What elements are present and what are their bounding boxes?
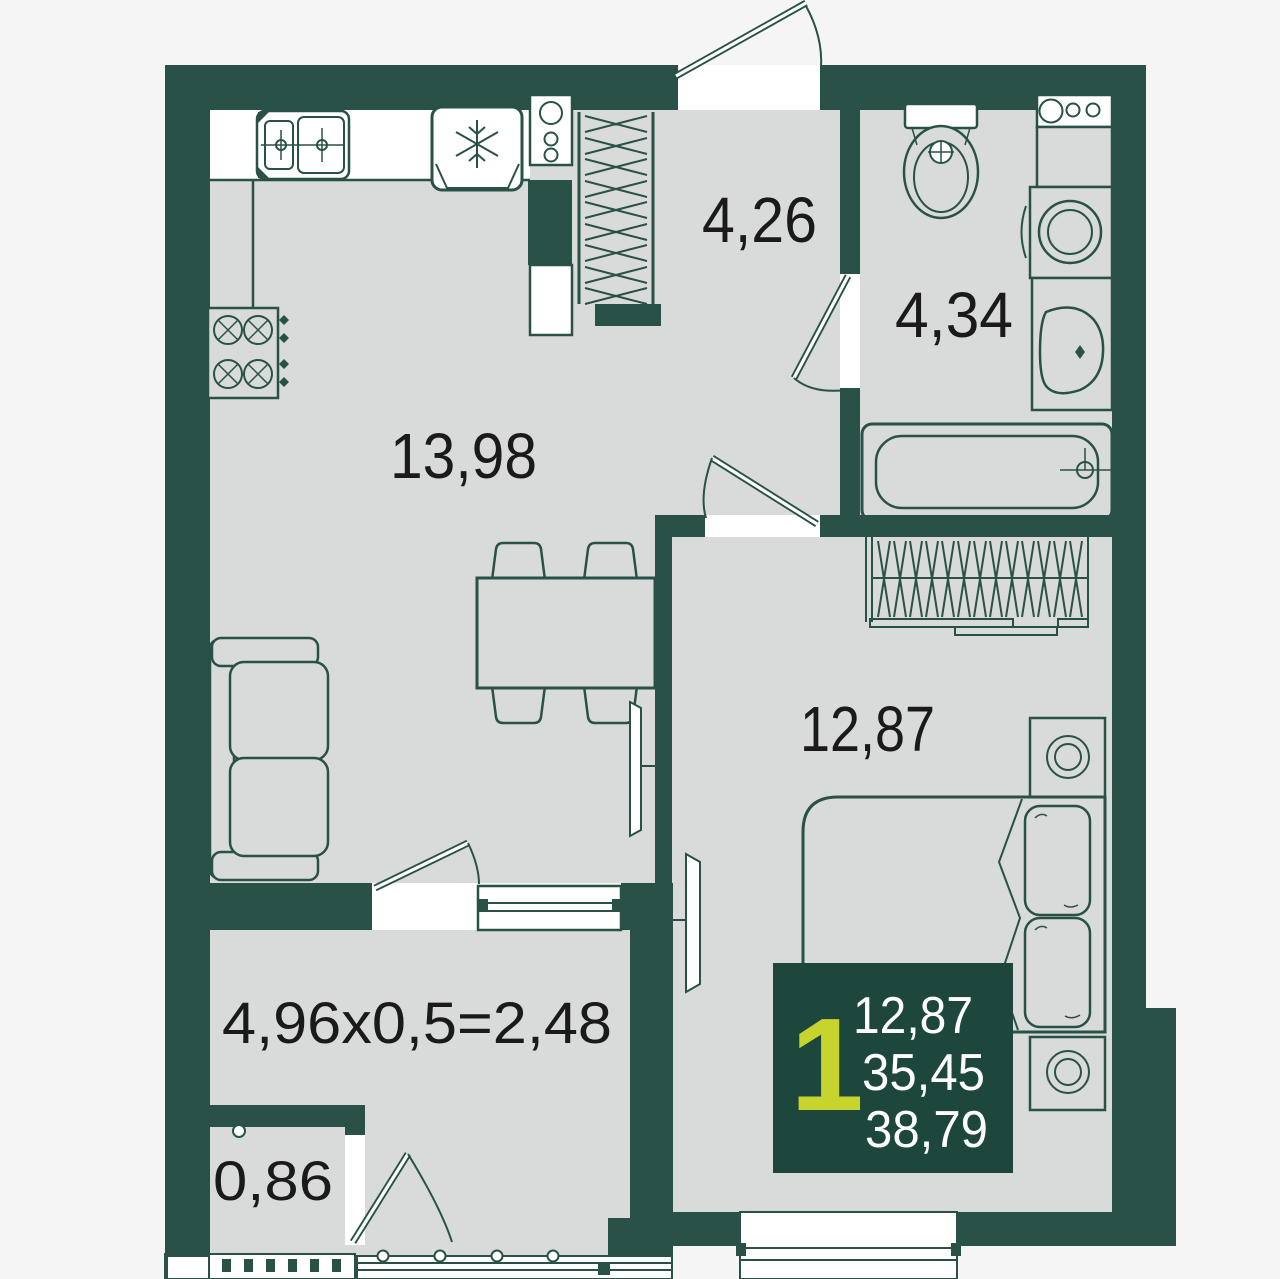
badge-total-area: 38,79 [865,1101,988,1159]
chair [492,686,545,723]
hob-burner-small [545,149,558,162]
nightstand-bottom [1030,1037,1105,1110]
floor-plan-screenshot: 1 12,87 35,45 38,79 13,98 4,26 4,34 12,8… [0,0,1280,1279]
window-bedroom [736,1212,961,1279]
label-hallway: 4,26 [702,184,817,256]
label-bedroom: 12,87 [800,693,935,765]
chair [492,543,545,580]
pillow [1025,806,1090,915]
wall-living-bedroom [655,517,672,937]
table-top [477,578,655,688]
bathroom-counter [1037,127,1112,187]
wall-left [165,65,210,1256]
hob-burner-large [540,102,562,124]
bathroom-sink [1032,278,1112,410]
fridge [432,107,522,190]
apartment-badge: 1 12,87 35,45 38,79 [773,963,1013,1173]
sofa [210,638,328,880]
nightstand-top [1030,718,1105,797]
window-living-balcony [478,886,621,930]
balcony-threshold [372,883,478,930]
wall-balcony-foot [608,1218,672,1256]
badge-living-area: 35,45 [862,1044,985,1102]
wall-bedroom-bottom-left [672,1212,740,1246]
label-kitchen-living: 13,98 [390,420,537,492]
washing-machine [1022,187,1113,278]
bathroom-vanity [1037,95,1112,187]
entrance-threshold [678,65,820,110]
wall-top [165,65,1146,110]
label-storage: 0,86 [213,1149,333,1212]
wall-storage-jamb [345,1105,365,1135]
hob-burner-small [545,133,558,146]
pillow [1025,918,1090,1027]
kitchen-cabinet-block [528,180,572,265]
stove [208,308,289,398]
wall-balcony-bedroom [630,883,673,1256]
wall-bedroom-bottom-right [957,1212,1146,1246]
wall-right-step [1146,1008,1176,1246]
floor-plan-svg: 1 12,87 35,45 38,79 13,98 4,26 4,34 12,8… [0,0,1280,1279]
badge-room-area: 12,87 [853,987,973,1045]
wall-living-balcony-right [621,883,657,930]
label-balcony: 4,96x0,5=2,48 [222,991,612,1056]
chair [584,543,637,580]
kitchen-sink [257,111,349,179]
wall-storage-top [165,1105,357,1127]
label-bathroom: 4,34 [895,279,1013,351]
wall-living-balcony-left [165,883,372,930]
storage-knob [233,1125,245,1137]
toilet [904,104,978,218]
balcony-glazing-panel [165,1254,355,1279]
coat-rack-base [595,304,661,326]
wall-right [1112,65,1146,1246]
